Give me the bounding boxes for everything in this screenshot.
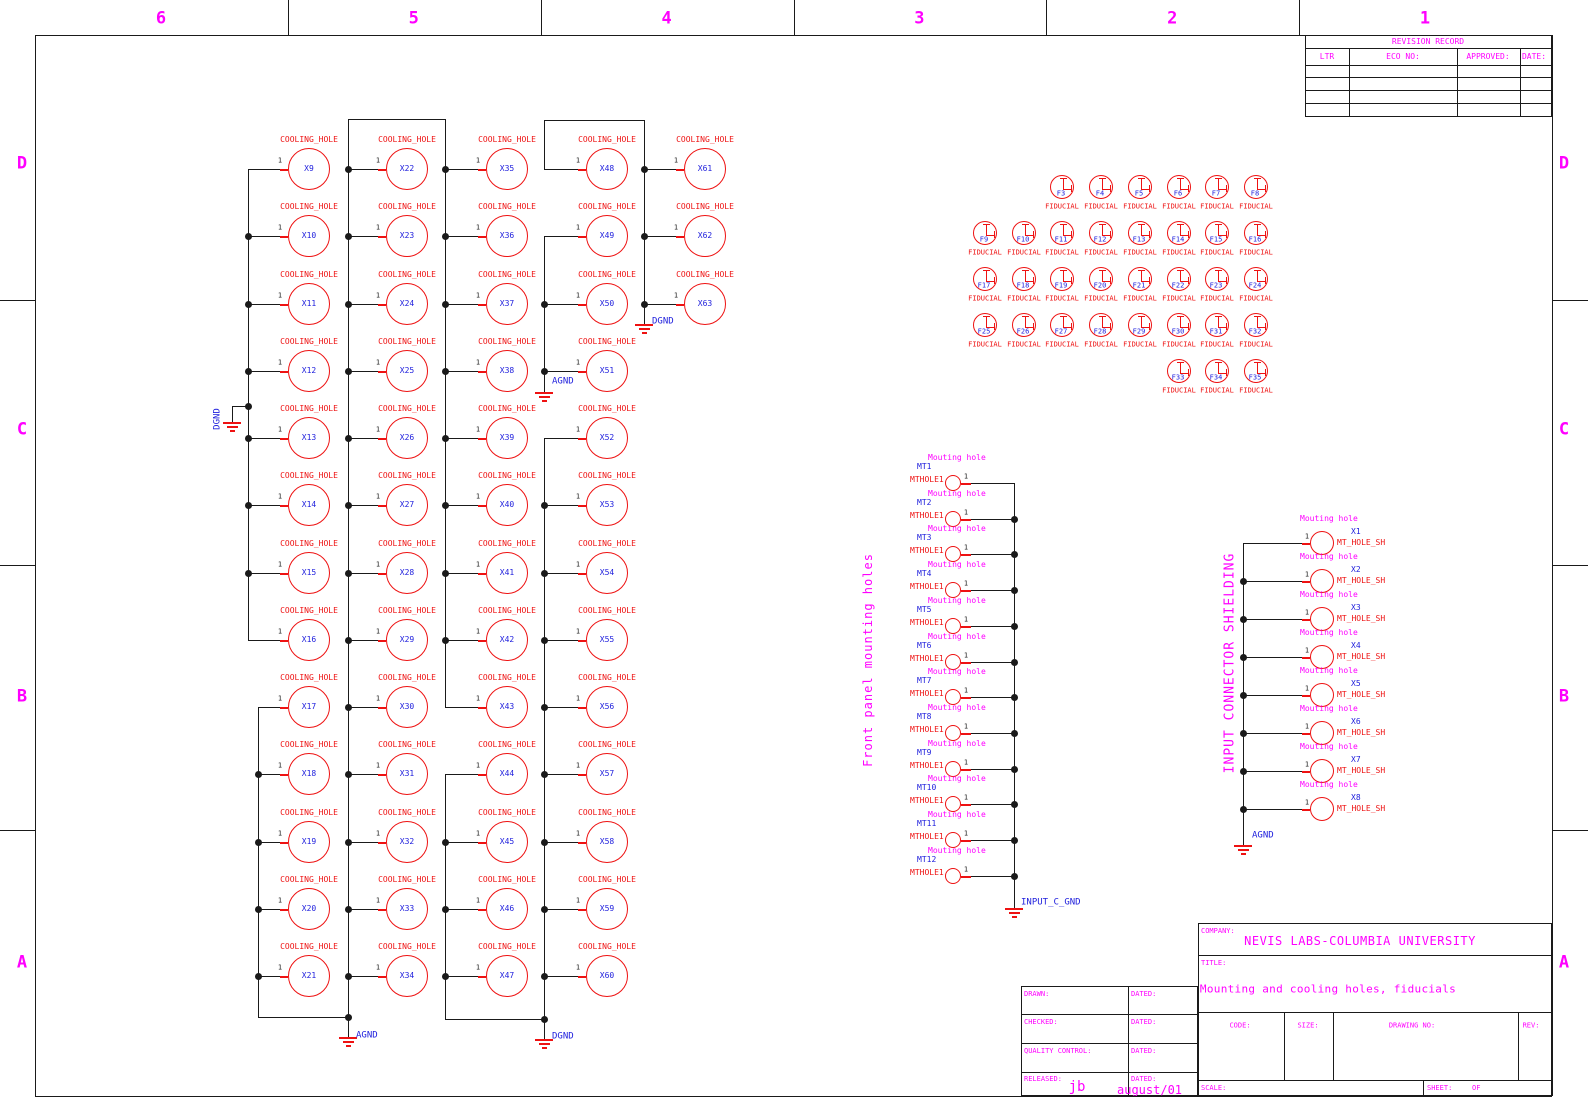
fiducial-mark bbox=[1102, 316, 1103, 327]
ground-net-label: DGND bbox=[652, 318, 674, 327]
pin-number: 1 bbox=[964, 867, 968, 874]
fiducial-mark bbox=[1218, 362, 1219, 373]
pin-stub bbox=[961, 733, 971, 735]
refdes: MT12 bbox=[917, 856, 936, 864]
junction-dot bbox=[345, 301, 352, 308]
pin-stub bbox=[378, 909, 386, 911]
fiducial-mark bbox=[1141, 178, 1142, 189]
fiducial-mark bbox=[1265, 185, 1266, 192]
wire bbox=[1243, 771, 1310, 772]
refdes: F7 bbox=[1212, 191, 1220, 198]
ground-stub bbox=[544, 372, 545, 392]
fiducial-mark bbox=[1257, 316, 1258, 327]
part-label: COOLING_HOLE bbox=[578, 136, 636, 144]
refdes: X63 bbox=[698, 300, 712, 308]
revision-table-line bbox=[1305, 90, 1552, 91]
pin-number: 1 bbox=[476, 225, 480, 232]
part-label: FIDUCIAL bbox=[1123, 296, 1157, 303]
pin-number: 1 bbox=[376, 427, 380, 434]
pin-number: 1 bbox=[674, 293, 678, 300]
pin-number: 1 bbox=[376, 293, 380, 300]
fiducial-mark bbox=[1141, 316, 1142, 327]
junction-dot bbox=[641, 166, 648, 173]
part-label: COOLING_HOLE bbox=[378, 405, 436, 413]
refdes: MT7 bbox=[917, 677, 931, 685]
part-label: MTHOLE1 bbox=[910, 797, 944, 805]
part-label: FIDUCIAL bbox=[1045, 342, 1079, 349]
pin-number: 1 bbox=[476, 898, 480, 905]
instance-label: Mouting hole bbox=[928, 633, 986, 641]
instance-label: Mouting hole bbox=[1300, 591, 1358, 599]
refdes: X17 bbox=[302, 703, 316, 711]
part-label: COOLING_HOLE bbox=[378, 540, 436, 548]
zone-tick-left bbox=[0, 300, 35, 301]
pin-number: 1 bbox=[964, 795, 968, 802]
fiducial-mark bbox=[1218, 178, 1219, 189]
refdes: X23 bbox=[400, 232, 414, 240]
pin-number: 1 bbox=[964, 581, 968, 588]
ground-symbol bbox=[535, 392, 553, 394]
border-left bbox=[35, 35, 36, 1096]
part-label: COOLING_HOLE bbox=[378, 674, 436, 682]
rev-label: REV: bbox=[1523, 1023, 1540, 1030]
pin-stub bbox=[280, 707, 288, 709]
approvals-line bbox=[1021, 1043, 1198, 1044]
pin-stub bbox=[578, 774, 586, 776]
pin-number: 1 bbox=[476, 562, 480, 569]
refdes: F23 bbox=[1210, 283, 1223, 290]
pin-stub bbox=[1302, 771, 1310, 773]
part-label: COOLING_HOLE bbox=[478, 540, 536, 548]
wire bbox=[1243, 657, 1310, 658]
fiducial-mark bbox=[1180, 178, 1181, 189]
part-label: COOLING_HOLE bbox=[478, 136, 536, 144]
ground-symbol bbox=[542, 1047, 547, 1049]
junction-dot bbox=[541, 570, 548, 577]
refdes: F3 bbox=[1057, 191, 1065, 198]
refdes: X44 bbox=[500, 770, 514, 778]
fiducial-mark bbox=[1177, 316, 1184, 317]
refdes: F17 bbox=[978, 283, 991, 290]
junction-dot bbox=[442, 301, 449, 308]
pin-stub bbox=[578, 842, 586, 844]
fiducial-mark bbox=[1188, 277, 1189, 284]
revision-table-line bbox=[1305, 103, 1552, 104]
pin-stub bbox=[578, 438, 586, 440]
fiducial-mark bbox=[1215, 270, 1222, 271]
input-shielding-section-title: INPUT CONNECTOR SHIELDING bbox=[1224, 553, 1237, 774]
zone-number: 3 bbox=[914, 11, 924, 28]
pin-number: 1 bbox=[376, 562, 380, 569]
fiducial-mark bbox=[1138, 270, 1145, 271]
fiducial-mark bbox=[986, 270, 987, 281]
junction-dot bbox=[345, 233, 352, 240]
pin-stub bbox=[280, 976, 288, 978]
pin-number: 1 bbox=[674, 225, 678, 232]
title-block-line bbox=[1198, 1012, 1552, 1013]
title-label: TITLE: bbox=[1201, 960, 1226, 967]
pin-number: 1 bbox=[476, 158, 480, 165]
zone-number: 1 bbox=[1420, 11, 1430, 28]
refdes: X7 bbox=[1351, 756, 1361, 764]
refdes: X33 bbox=[400, 905, 414, 913]
junction-dot bbox=[442, 570, 449, 577]
junction-dot bbox=[442, 233, 449, 240]
part-label: COOLING_HOLE bbox=[378, 876, 436, 884]
released-date-value: august/01 bbox=[1117, 1084, 1182, 1096]
part-label: FIDUCIAL bbox=[1007, 342, 1041, 349]
refdes: F14 bbox=[1172, 237, 1185, 244]
fiducial-mark bbox=[1215, 316, 1222, 317]
pin-stub bbox=[378, 371, 386, 373]
part-label: COOLING_HOLE bbox=[280, 540, 338, 548]
junction-dot bbox=[245, 233, 252, 240]
fiducial-mark bbox=[1099, 270, 1106, 271]
fiducial-mark bbox=[1102, 270, 1103, 281]
pin-number: 1 bbox=[278, 965, 282, 972]
refdes: X9 bbox=[304, 165, 314, 173]
junction-dot bbox=[442, 502, 449, 509]
refdes: X28 bbox=[400, 569, 414, 577]
pin-stub bbox=[378, 304, 386, 306]
refdes: MT11 bbox=[917, 820, 936, 828]
revision-table-title: REVISION RECORD bbox=[1392, 38, 1464, 46]
fiducial-mark bbox=[1149, 231, 1150, 238]
zone-tick-top bbox=[1046, 0, 1047, 35]
part-label: COOLING_HOLE bbox=[478, 607, 536, 615]
fiducial-mark bbox=[1180, 270, 1181, 281]
title-block-line bbox=[1518, 1012, 1519, 1080]
refdes: X37 bbox=[500, 300, 514, 308]
refdes: X58 bbox=[600, 838, 614, 846]
part-label: COOLING_HOLE bbox=[478, 809, 536, 817]
pin-stub bbox=[280, 909, 288, 911]
junction-dot bbox=[345, 570, 352, 577]
part-label: FIDUCIAL bbox=[1045, 250, 1079, 257]
pin-number: 1 bbox=[278, 494, 282, 501]
refdes: X31 bbox=[400, 770, 414, 778]
junction-dot bbox=[442, 166, 449, 173]
part-label: FIDUCIAL bbox=[1123, 342, 1157, 349]
ground-symbol bbox=[635, 324, 653, 326]
part-label: COOLING_HOLE bbox=[578, 271, 636, 279]
part-label: MT_HOLE_SH bbox=[1337, 577, 1385, 585]
zone-tick-top bbox=[1299, 0, 1300, 35]
pin-number: 1 bbox=[1305, 648, 1309, 655]
refdes: F24 bbox=[1249, 283, 1262, 290]
part-label: MT_HOLE_SH bbox=[1337, 691, 1385, 699]
checked-label: CHECKED: bbox=[1024, 1019, 1058, 1026]
pin-stub bbox=[478, 976, 486, 978]
part-label: COOLING_HOLE bbox=[478, 203, 536, 211]
ground-symbol bbox=[1009, 912, 1020, 914]
approvals-line bbox=[1128, 986, 1129, 1096]
drawn-label: DRAWN: bbox=[1024, 991, 1049, 998]
pin-stub bbox=[478, 909, 486, 911]
refdes: MT1 bbox=[917, 463, 931, 471]
refdes: X27 bbox=[400, 501, 414, 509]
fiducial-mark bbox=[1177, 270, 1184, 271]
junction-dot bbox=[541, 906, 548, 913]
junction-dot bbox=[345, 435, 352, 442]
quality-dated-label: DATED: bbox=[1131, 1048, 1156, 1055]
pin-stub bbox=[378, 640, 386, 642]
ground-symbol bbox=[535, 1039, 553, 1041]
refdes: X3 bbox=[1351, 604, 1361, 612]
wire bbox=[1243, 543, 1310, 544]
part-label: COOLING_HOLE bbox=[378, 607, 436, 615]
pin-number: 1 bbox=[376, 225, 380, 232]
part-label: COOLING_HOLE bbox=[578, 876, 636, 884]
pin-stub bbox=[478, 774, 486, 776]
pin-number: 1 bbox=[376, 494, 380, 501]
refdes: X55 bbox=[600, 636, 614, 644]
pin-stub bbox=[676, 236, 684, 238]
ground-symbol bbox=[1012, 916, 1017, 918]
part-label: MTHOLE1 bbox=[910, 583, 944, 591]
instance-label: Mouting hole bbox=[928, 668, 986, 676]
pin-number: 1 bbox=[964, 831, 968, 838]
ground-symbol bbox=[539, 1043, 550, 1045]
wire bbox=[1243, 695, 1310, 696]
fiducial-mark bbox=[1149, 185, 1150, 192]
fiducial-mark bbox=[1060, 224, 1067, 225]
part-label: COOLING_HOLE bbox=[676, 271, 734, 279]
fiducial-mark bbox=[1022, 316, 1029, 317]
fiducial-mark bbox=[1218, 270, 1219, 281]
refdes: F22 bbox=[1172, 283, 1185, 290]
part-label: COOLING_HOLE bbox=[578, 405, 636, 413]
part-label: FIDUCIAL bbox=[1200, 388, 1234, 395]
pin-stub bbox=[478, 169, 486, 171]
ground-net-label: AGND bbox=[1252, 832, 1274, 841]
fiducial-mark bbox=[1177, 362, 1184, 363]
pin-stub bbox=[378, 976, 386, 978]
refdes: F15 bbox=[1210, 237, 1223, 244]
pin-stub bbox=[280, 640, 288, 642]
ground-stub bbox=[544, 1019, 545, 1039]
instance-label: Mouting hole bbox=[1300, 667, 1358, 675]
junction-dot bbox=[541, 771, 548, 778]
pin-number: 1 bbox=[576, 965, 580, 972]
revision-col-date: DATE: bbox=[1522, 53, 1546, 61]
refdes: X53 bbox=[600, 501, 614, 509]
refdes: F35 bbox=[1249, 375, 1262, 382]
pin-number: 1 bbox=[376, 696, 380, 703]
ground-symbol bbox=[346, 1045, 351, 1047]
zone-tick-left bbox=[0, 565, 35, 566]
pin-stub bbox=[280, 774, 288, 776]
sheet-label: SHEET: bbox=[1427, 1085, 1452, 1092]
part-label: FIDUCIAL bbox=[1084, 250, 1118, 257]
part-label: MTHOLE1 bbox=[910, 690, 944, 698]
part-label: COOLING_HOLE bbox=[478, 876, 536, 884]
pin-stub bbox=[478, 371, 486, 373]
part-label: FIDUCIAL bbox=[1200, 342, 1234, 349]
refdes: F11 bbox=[1055, 237, 1068, 244]
ground-symbol bbox=[1238, 849, 1249, 851]
pin-stub bbox=[1302, 695, 1310, 697]
part-label: COOLING_HOLE bbox=[676, 203, 734, 211]
refdes: F16 bbox=[1249, 237, 1262, 244]
pin-number: 1 bbox=[476, 293, 480, 300]
fiducial-mark bbox=[1025, 316, 1026, 327]
pin-stub bbox=[578, 573, 586, 575]
part-label: FIDUCIAL bbox=[968, 342, 1002, 349]
refdes: MT5 bbox=[917, 606, 931, 614]
refdes: X11 bbox=[302, 300, 316, 308]
junction-dot bbox=[255, 906, 262, 913]
pin-stub bbox=[378, 774, 386, 776]
part-label: COOLING_HOLE bbox=[378, 809, 436, 817]
zone-letter-right: C bbox=[1559, 422, 1569, 439]
pin-number: 1 bbox=[476, 696, 480, 703]
fiducial-mark bbox=[1138, 316, 1145, 317]
bus-wire bbox=[644, 120, 645, 304]
pin-number: 1 bbox=[476, 831, 480, 838]
refdes: X60 bbox=[600, 972, 614, 980]
bus-wire bbox=[348, 119, 349, 1017]
fiducial-mark bbox=[1218, 316, 1219, 327]
fiducial-mark bbox=[1257, 270, 1258, 281]
bus-wire bbox=[445, 774, 446, 1019]
part-label: FIDUCIAL bbox=[1200, 296, 1234, 303]
pin-number: 1 bbox=[1305, 534, 1309, 541]
pin-number: 1 bbox=[278, 629, 282, 636]
instance-label: Mouting hole bbox=[1300, 515, 1358, 523]
junction-dot bbox=[442, 368, 449, 375]
part-label: FIDUCIAL bbox=[1239, 388, 1273, 395]
fiducial-mark bbox=[1254, 224, 1261, 225]
part-label: COOLING_HOLE bbox=[478, 943, 536, 951]
junction-dot bbox=[442, 435, 449, 442]
checked-dated-label: DATED: bbox=[1131, 1019, 1156, 1026]
fiducial-mark bbox=[986, 316, 987, 327]
refdes: X26 bbox=[400, 434, 414, 442]
fiducial-mark bbox=[1025, 224, 1026, 235]
pin-number: 1 bbox=[1305, 686, 1309, 693]
refdes: X57 bbox=[600, 770, 614, 778]
part-label: FIDUCIAL bbox=[1239, 204, 1273, 211]
fiducial-mark bbox=[1188, 185, 1189, 192]
refdes: X14 bbox=[302, 501, 316, 509]
approvals-line bbox=[1021, 1014, 1198, 1015]
approvals-line bbox=[1021, 1072, 1198, 1073]
pin-stub bbox=[478, 236, 486, 238]
refdes: X12 bbox=[302, 367, 316, 375]
fiducial-mark bbox=[1033, 231, 1034, 238]
part-label: FIDUCIAL bbox=[1162, 296, 1196, 303]
fiducial-mark bbox=[1141, 224, 1142, 235]
pin-number: 1 bbox=[278, 763, 282, 770]
refdes: X1 bbox=[1351, 528, 1361, 536]
part-label: COOLING_HOLE bbox=[578, 674, 636, 682]
fiducial-mark bbox=[1138, 224, 1145, 225]
pin-stub bbox=[280, 304, 288, 306]
part-label: MTHOLE1 bbox=[910, 762, 944, 770]
fiducial-mark bbox=[1265, 277, 1266, 284]
refdes: X35 bbox=[500, 165, 514, 173]
part-label: FIDUCIAL bbox=[1162, 388, 1196, 395]
refdes: MT10 bbox=[917, 784, 936, 792]
refdes: X42 bbox=[500, 636, 514, 644]
ground-stub bbox=[644, 304, 645, 324]
part-label: COOLING_HOLE bbox=[378, 741, 436, 749]
part-label: FIDUCIAL bbox=[1239, 250, 1273, 257]
pin-stub bbox=[280, 169, 288, 171]
fiducial-mark bbox=[1033, 323, 1034, 330]
instance-label: Mouting hole bbox=[928, 811, 986, 819]
pin-stub bbox=[961, 519, 971, 521]
pin-stub bbox=[676, 304, 684, 306]
pin-stub bbox=[378, 169, 386, 171]
zone-tick-top bbox=[541, 0, 542, 35]
fiducial-mark bbox=[1177, 224, 1184, 225]
junction-dot bbox=[541, 301, 548, 308]
ground-net-label: INPUT_C_GND bbox=[1021, 899, 1081, 908]
part-label: FIDUCIAL bbox=[1007, 250, 1041, 257]
part-label: FIDUCIAL bbox=[1007, 296, 1041, 303]
refdes: X39 bbox=[500, 434, 514, 442]
bus-wire bbox=[258, 1017, 348, 1018]
part-label: COOLING_HOLE bbox=[378, 338, 436, 346]
fiducial-mark bbox=[1063, 224, 1064, 235]
pin-stub bbox=[378, 505, 386, 507]
fiducial-mark bbox=[1099, 178, 1106, 179]
zone-letter-left: B bbox=[17, 688, 27, 705]
ground-stub bbox=[1014, 876, 1015, 908]
refdes: X62 bbox=[698, 232, 712, 240]
pin-number: 1 bbox=[476, 629, 480, 636]
refdes: X61 bbox=[698, 165, 712, 173]
fiducial-mark bbox=[1060, 178, 1067, 179]
refdes: X47 bbox=[500, 972, 514, 980]
refdes: X29 bbox=[400, 636, 414, 644]
schematic-sheet: REVISION RECORD LTR ECO NO: APPROVED: DA… bbox=[0, 0, 1588, 1099]
pin-stub bbox=[676, 169, 684, 171]
fiducial-mark bbox=[1188, 231, 1189, 238]
pin-stub bbox=[578, 371, 586, 373]
part-label: COOLING_HOLE bbox=[280, 203, 338, 211]
refdes: MT8 bbox=[917, 713, 931, 721]
company-name: NEVIS LABS-COLUMBIA UNIVERSITY bbox=[1244, 935, 1476, 947]
refdes: X24 bbox=[400, 300, 414, 308]
revision-table-line bbox=[1349, 48, 1350, 117]
part-label: FIDUCIAL bbox=[1045, 296, 1079, 303]
pin-number: 1 bbox=[278, 293, 282, 300]
ground-symbol bbox=[1234, 845, 1252, 847]
zone-tick-right bbox=[1552, 830, 1588, 831]
part-label: FIDUCIAL bbox=[1162, 250, 1196, 257]
wire bbox=[1243, 619, 1310, 620]
border-top bbox=[35, 35, 1552, 36]
fiducial-mark bbox=[1226, 323, 1227, 330]
fiducial-mark bbox=[1215, 362, 1222, 363]
pin-stub bbox=[478, 707, 486, 709]
fiducial-mark bbox=[1218, 224, 1219, 235]
part-label: COOLING_HOLE bbox=[280, 338, 338, 346]
refdes: F25 bbox=[978, 329, 991, 336]
junction-dot bbox=[245, 435, 252, 442]
refdes: F32 bbox=[1249, 329, 1262, 336]
pin-stub bbox=[1302, 619, 1310, 621]
ground-symbol bbox=[339, 1037, 357, 1039]
pin-number: 1 bbox=[476, 427, 480, 434]
pin-number: 1 bbox=[964, 545, 968, 552]
wire bbox=[1243, 581, 1310, 582]
refdes: F27 bbox=[1055, 329, 1068, 336]
junction-dot bbox=[541, 704, 548, 711]
